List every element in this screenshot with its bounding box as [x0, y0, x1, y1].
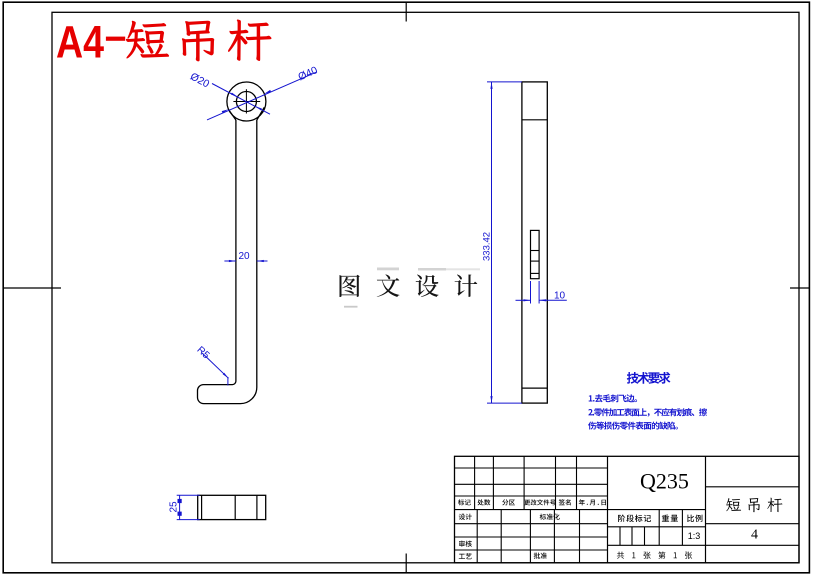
- svg-text:Q235: Q235: [640, 468, 689, 493]
- svg-text:Ø40: Ø40: [296, 64, 319, 83]
- svg-text:A4: A4: [56, 16, 104, 67]
- svg-text:1:3: 1:3: [688, 531, 701, 541]
- svg-text:20: 20: [239, 251, 251, 262]
- svg-text:333.42: 333.42: [482, 232, 493, 261]
- svg-text:10: 10: [554, 291, 566, 302]
- svg-text:25: 25: [169, 501, 180, 513]
- svg-text:4: 4: [751, 528, 758, 543]
- svg-text:Ø20: Ø20: [188, 71, 211, 91]
